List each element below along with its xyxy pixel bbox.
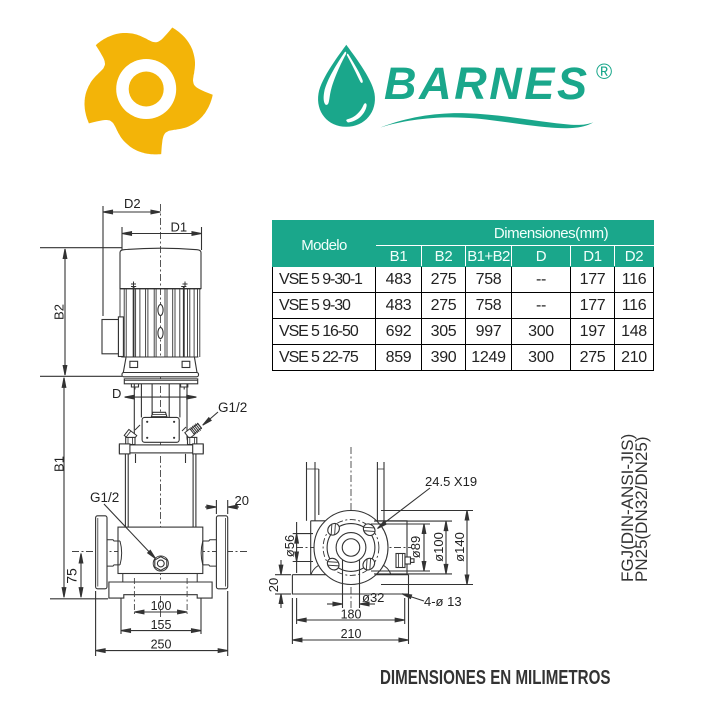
svg-text:20: 20 — [266, 578, 281, 592]
svg-text:ø32: ø32 — [362, 590, 384, 605]
svg-text:ø89: ø89 — [408, 536, 423, 558]
svg-text:ø100: ø100 — [431, 532, 446, 562]
svg-text:ø140: ø140 — [452, 532, 467, 562]
svg-text:180: 180 — [341, 608, 362, 622]
svg-text:4-ø 13: 4-ø 13 — [424, 594, 462, 609]
svg-text:210: 210 — [341, 627, 362, 641]
svg-text:ø56: ø56 — [282, 535, 297, 557]
svg-text:24.5 X19: 24.5 X19 — [425, 474, 477, 489]
